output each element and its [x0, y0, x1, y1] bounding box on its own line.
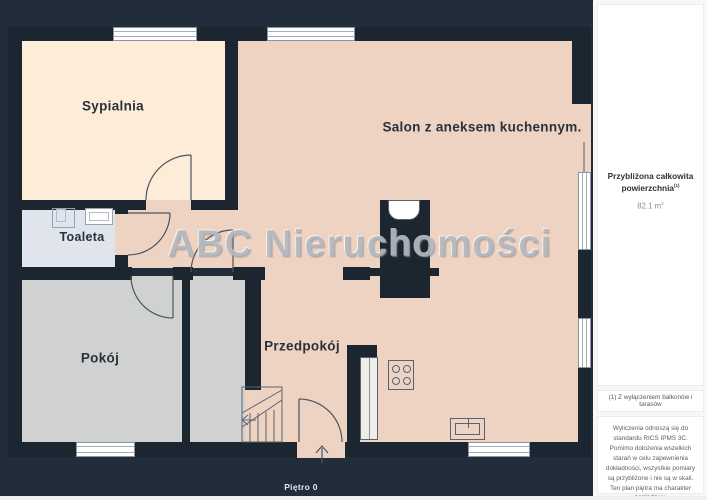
- area-block: Przybliżona całkowita powierzchnia(1) 82…: [598, 170, 703, 211]
- room-label-sypialnia: Sypialnia: [82, 99, 144, 114]
- disclaimer-card: Wyliczenia odnoszą się do standardu RICS…: [597, 416, 704, 494]
- door-arc-entry: [299, 399, 342, 442]
- entry-arrow-icon: [316, 446, 328, 463]
- floorplan-page: Sypialnia Salon z aneksem kuchennym. Toa…: [0, 0, 707, 500]
- area-card: Przybliżona całkowita powierzchnia(1) 82…: [597, 4, 704, 386]
- room-label-salon: Salon z aneksem kuchennym.: [382, 120, 581, 135]
- room-label-toaleta: Toaleta: [60, 230, 105, 244]
- room-label-przedpokoj: Przedpokój: [264, 339, 340, 354]
- staircase: [242, 387, 282, 442]
- floor-label: Piętro 0: [284, 482, 318, 492]
- agency-watermark: ABC Nieruchomości: [168, 224, 552, 267]
- area-number: 82.1: [637, 202, 652, 211]
- door-arc-pokoj: [131, 276, 173, 318]
- floorplan: Sypialnia Salon z aneksem kuchennym. Toa…: [0, 0, 593, 500]
- area-title-superscript: (1): [674, 183, 680, 188]
- room-label-pokoj: Pokój: [81, 351, 119, 366]
- area-unit-superscript: 2: [661, 201, 664, 206]
- info-sidebar: Przybliżona całkowita powierzchnia(1) 82…: [593, 0, 707, 500]
- area-title-text: Przybliżona całkowita powierzchnia: [608, 171, 694, 193]
- area-title: Przybliżona całkowita powierzchnia(1): [598, 170, 703, 194]
- footnote-card: (1) Z wyłączeniem balkonów i tarasów: [597, 390, 704, 412]
- footnote-text: (1) Z wyłączeniem balkonów i tarasów: [598, 394, 703, 408]
- door-arc-toilet: [128, 213, 170, 255]
- area-value: 82.1 m2: [598, 201, 703, 211]
- page-bottom-edge: [0, 496, 707, 500]
- disclaimer-text: Wyliczenia odnoszą się do standardu RICS…: [598, 424, 703, 500]
- door-arc-bedroom: [146, 155, 191, 200]
